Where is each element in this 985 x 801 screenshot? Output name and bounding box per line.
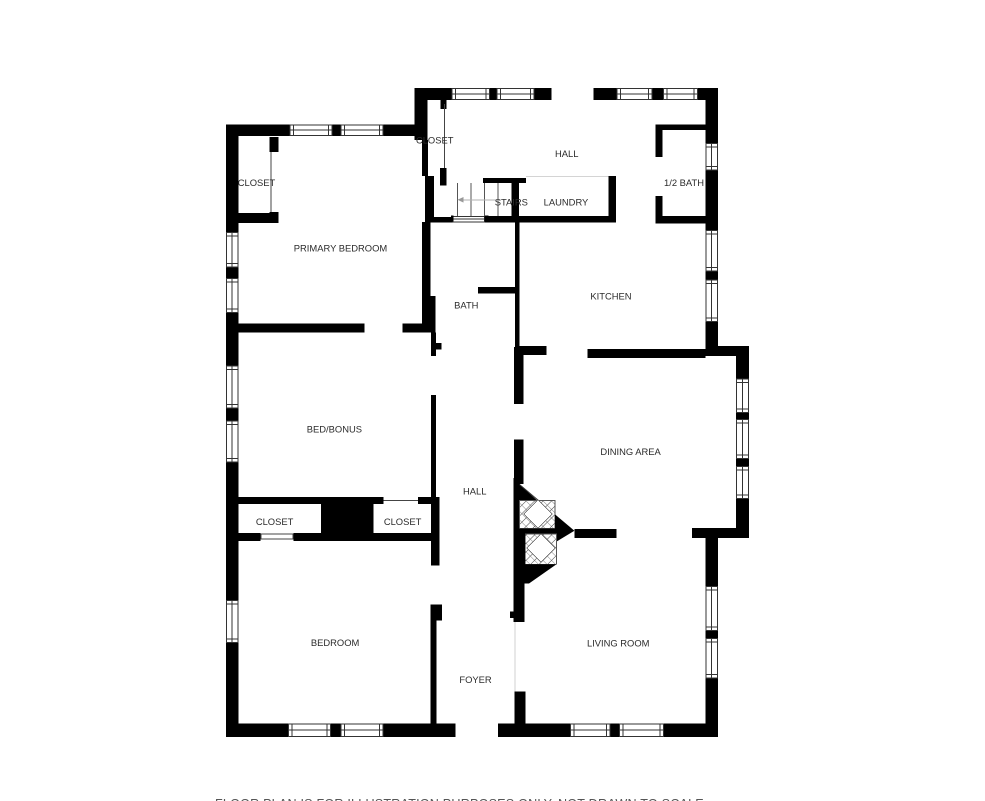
svg-text:KITCHEN: KITCHEN <box>590 290 631 301</box>
svg-text:PRIMARY BEDROOM: PRIMARY BEDROOM <box>294 243 388 254</box>
svg-text:CLOSET: CLOSET <box>416 135 454 146</box>
svg-text:BEDROOM: BEDROOM <box>311 637 360 648</box>
svg-text:HALL: HALL <box>463 486 486 497</box>
svg-text:DINING AREA: DINING AREA <box>600 446 661 457</box>
svg-text:BED/BONUS: BED/BONUS <box>307 424 362 435</box>
svg-text:BATH: BATH <box>454 300 478 311</box>
svg-text:STAIRS: STAIRS <box>495 197 528 208</box>
svg-text:CLOSET: CLOSET <box>256 516 294 527</box>
svg-text:CLOSET: CLOSET <box>238 177 276 188</box>
svg-text:LAUNDRY: LAUNDRY <box>544 197 589 208</box>
svg-text:CLOSET: CLOSET <box>384 516 422 527</box>
svg-text:HALL: HALL <box>555 148 578 159</box>
svg-text:FOYER: FOYER <box>459 674 492 685</box>
svg-text:LIVING ROOM: LIVING ROOM <box>587 638 650 649</box>
svg-text:1/2 BATH: 1/2 BATH <box>664 177 704 188</box>
